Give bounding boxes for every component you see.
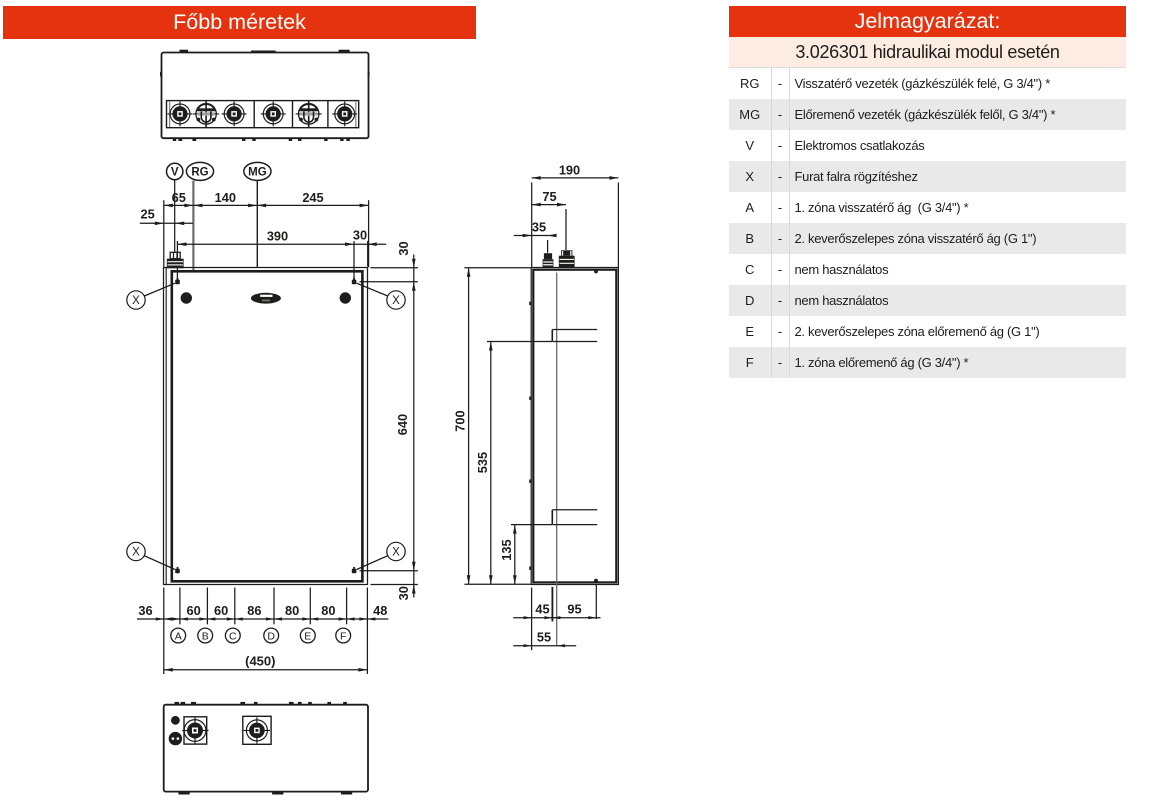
svg-text:RG: RG [191,167,208,179]
svg-text:C: C [229,631,237,643]
svg-text:86: 86 [247,603,261,618]
svg-text:F: F [340,631,346,643]
svg-text:X: X [132,547,140,559]
svg-text:75: 75 [542,189,556,204]
svg-text:245: 245 [302,190,323,205]
svg-text:25: 25 [140,206,154,221]
svg-text:B: B [202,631,209,643]
svg-text:MG: MG [248,167,267,179]
svg-text:D: D [267,631,275,643]
svg-text:(450): (450) [245,653,275,668]
svg-text:60: 60 [214,603,228,618]
svg-text:640: 640 [395,414,410,435]
svg-text:30: 30 [353,227,367,242]
svg-text:36: 36 [138,603,152,618]
svg-text:55: 55 [537,630,551,645]
svg-text:35: 35 [532,220,546,235]
svg-text:95: 95 [567,602,581,617]
svg-text:30: 30 [396,241,411,255]
svg-text:X: X [392,295,400,307]
svg-text:45: 45 [535,602,549,617]
svg-text:390: 390 [267,228,288,243]
svg-text:V: V [171,167,179,179]
svg-text:80: 80 [285,603,299,618]
svg-text:E: E [304,631,311,643]
svg-text:A: A [175,631,182,643]
svg-text:535: 535 [475,452,490,473]
svg-text:140: 140 [215,190,236,205]
svg-text:X: X [392,547,400,559]
svg-text:48: 48 [373,603,387,618]
svg-text:190: 190 [559,162,580,177]
svg-text:80: 80 [321,603,335,618]
svg-text:X: X [132,295,140,307]
svg-text:60: 60 [186,603,200,618]
svg-text:30: 30 [396,586,411,600]
svg-text:135: 135 [499,539,514,560]
svg-text:65: 65 [172,190,186,205]
svg-text:700: 700 [453,410,468,431]
